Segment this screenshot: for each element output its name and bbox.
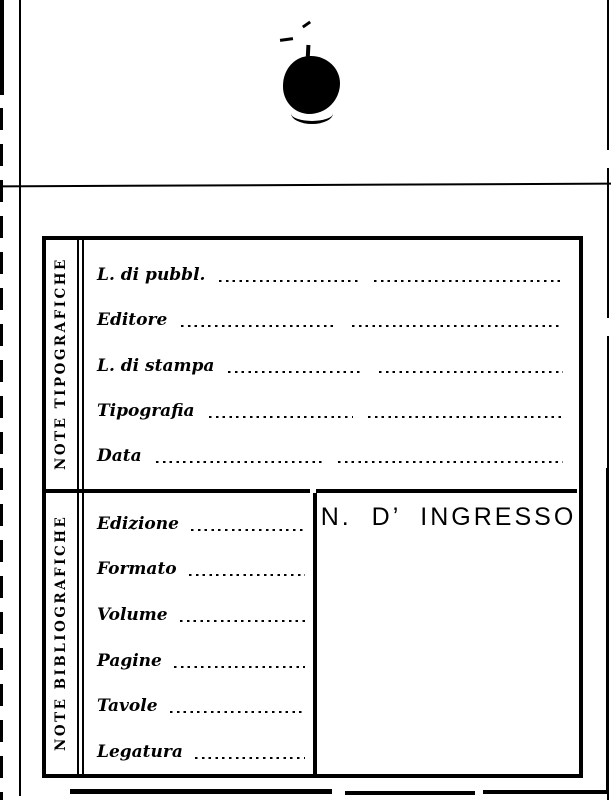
field-label: Legatura xyxy=(97,744,183,762)
dotted-line xyxy=(189,574,305,576)
field-label: Data xyxy=(97,448,142,466)
field-row-pagine: Pagine xyxy=(97,631,305,677)
field-row-tipografia: Tipografia xyxy=(97,382,563,427)
scan-edge-bottom xyxy=(345,791,475,795)
horizontal-fold-line xyxy=(0,183,611,188)
field-row-editore: Editore xyxy=(97,291,563,336)
dotted-line xyxy=(219,280,359,282)
scan-edge-bottom xyxy=(483,790,608,794)
left-fold-line xyxy=(19,0,21,796)
field-row-edizione: Edizione xyxy=(97,494,305,540)
field-row-volume: Volume xyxy=(97,585,305,631)
dotted-line xyxy=(379,371,563,373)
ink-blot-speck xyxy=(302,21,311,29)
section-divider xyxy=(46,489,310,493)
tipografiche-fields: L. di pubbl. Editore L. di stampa Tipogr… xyxy=(97,246,563,472)
dotted-line xyxy=(191,529,305,531)
ink-blot-drip xyxy=(306,45,311,61)
field-row-formato: Formato xyxy=(97,540,305,586)
sidebar-label-note-bibliografiche: NOTE BIBLIOGRAFICHE xyxy=(45,493,77,773)
field-label: Formato xyxy=(97,561,177,579)
field-row-legatura: Legatura xyxy=(97,722,305,768)
field-label: Edizione xyxy=(97,516,179,534)
ingresso-header: N. D’ INGRESSO xyxy=(320,503,577,532)
sidebar-label-note-tipografiche: NOTE TIPOGRAFICHE xyxy=(45,241,77,487)
dotted-line xyxy=(374,280,563,282)
sidebar-double-rule xyxy=(77,240,84,774)
dotted-line xyxy=(352,325,563,327)
field-label: Tavole xyxy=(97,698,158,716)
ink-blot-speck xyxy=(280,37,293,42)
scan-edge-right-thick xyxy=(606,468,609,790)
field-label: L. di stampa xyxy=(97,358,214,376)
dotted-line xyxy=(170,711,305,713)
section-divider xyxy=(316,489,577,493)
ink-blot-arc xyxy=(291,103,333,124)
field-row-data: Data xyxy=(97,427,563,472)
dotted-line xyxy=(368,416,563,418)
field-row-tavole: Tavole xyxy=(97,677,305,723)
dotted-line xyxy=(174,666,305,668)
bibliografiche-fields: Edizione Formato Volume Pagine Tavole Le… xyxy=(97,494,305,768)
field-label: Volume xyxy=(97,607,168,625)
field-label: Tipografia xyxy=(97,403,195,421)
field-row-luogo-stampa: L. di stampa xyxy=(97,336,563,381)
dotted-line xyxy=(209,416,353,418)
field-label: Editore xyxy=(97,312,167,330)
scan-edge-left-top xyxy=(0,0,4,95)
dotted-line xyxy=(156,461,323,463)
dotted-line xyxy=(195,757,305,759)
scan-edge-bottom xyxy=(70,789,332,794)
field-label: L. di pubbl. xyxy=(97,267,205,285)
field-label: Pagine xyxy=(97,653,162,671)
dotted-line xyxy=(180,620,305,622)
dotted-line xyxy=(181,325,337,327)
column-divider xyxy=(313,493,317,774)
dotted-line xyxy=(338,461,563,463)
dotted-line xyxy=(228,371,364,373)
scan-edge-left xyxy=(0,0,3,800)
field-row-luogo-pubblicazione: L. di pubbl. xyxy=(97,246,563,291)
